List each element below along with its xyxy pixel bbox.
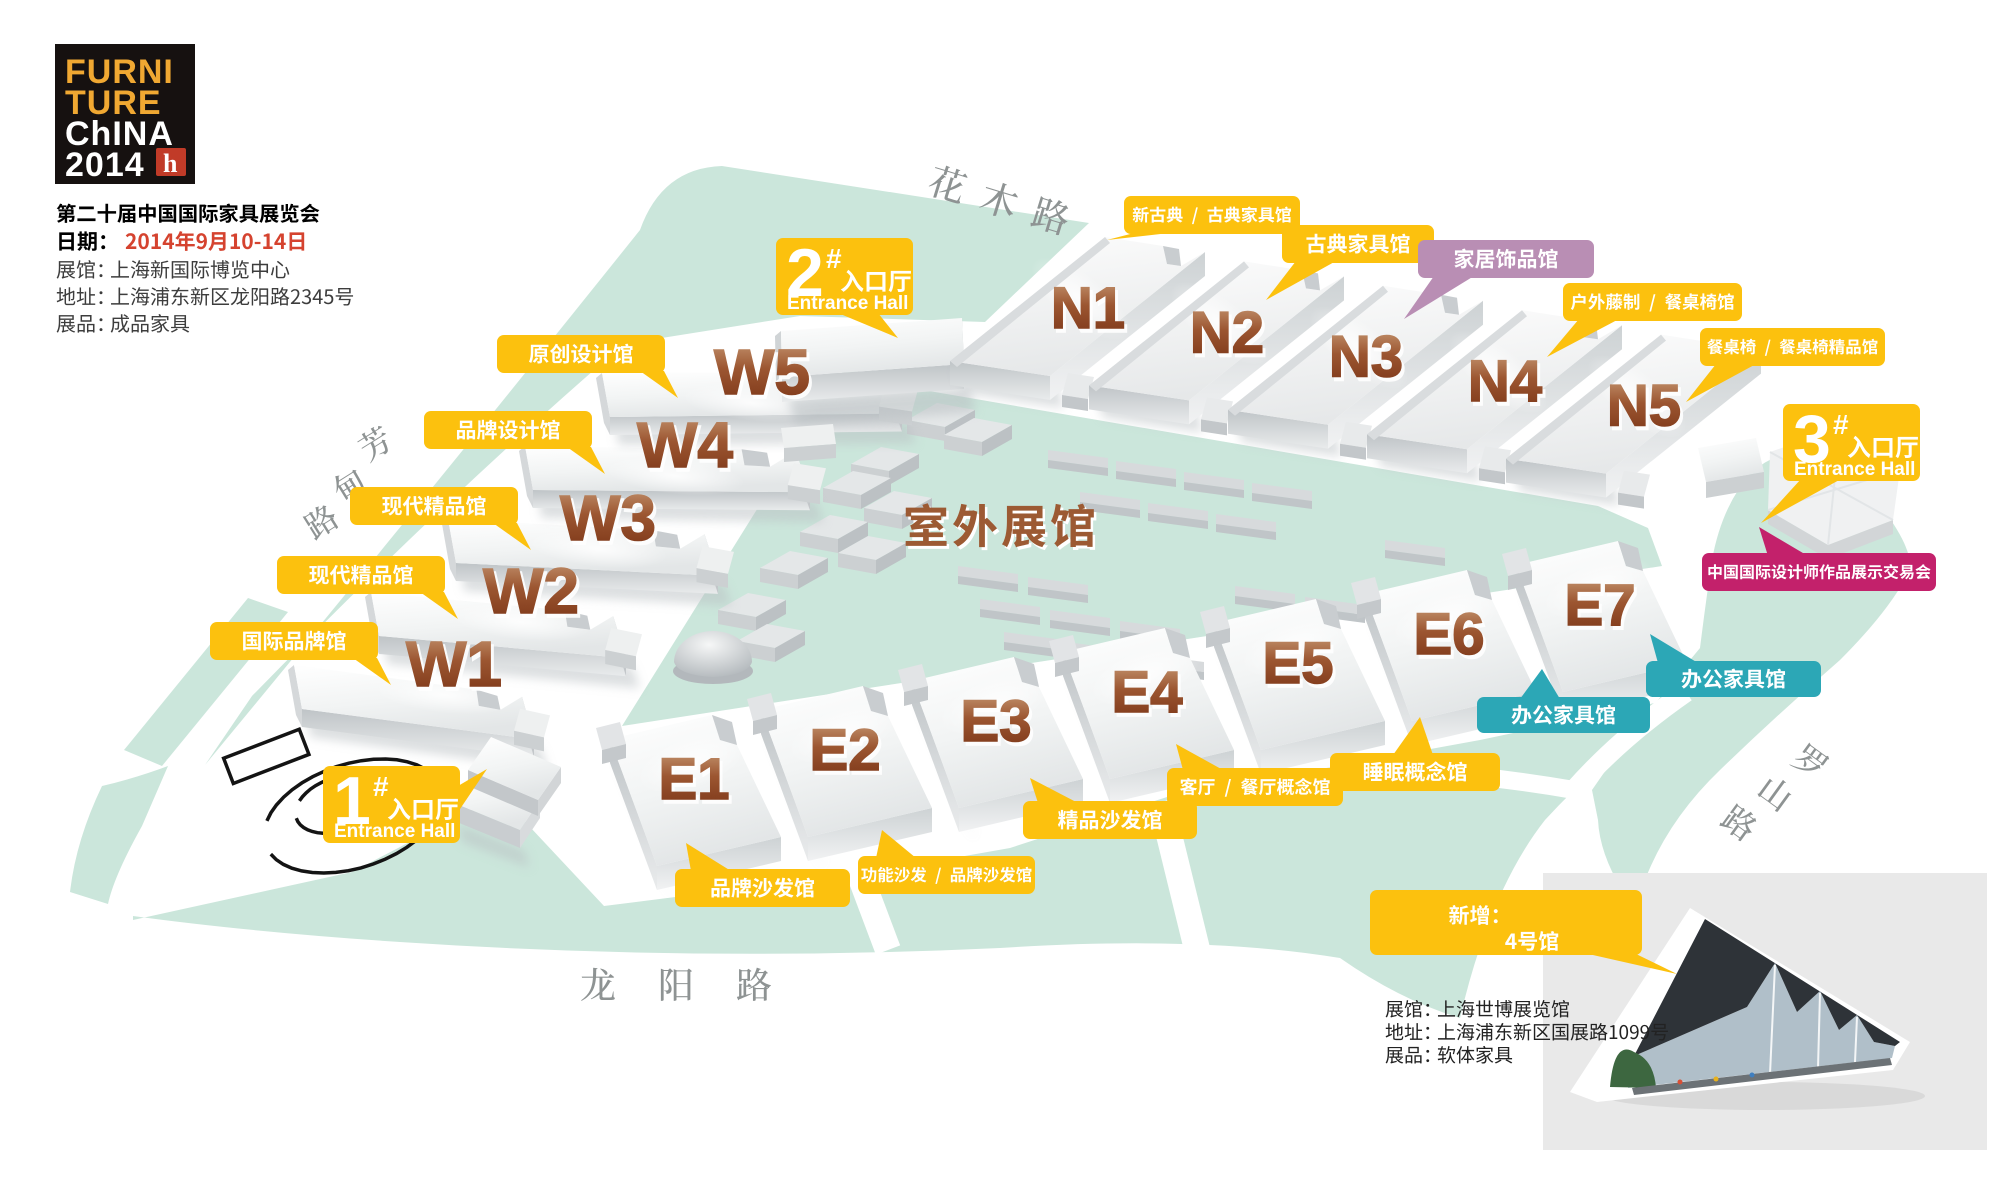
svg-text:W2: W2 [483,555,579,627]
svg-text:#: # [826,243,842,274]
svg-text:#: # [1833,409,1849,440]
svg-text:N5: N5 [1607,373,1681,438]
svg-text:E4: E4 [1112,660,1183,725]
svg-text:E1: E1 [659,747,730,812]
svg-text:N3: N3 [1329,325,1403,390]
svg-text:h: h [163,149,178,178]
svg-text:E5: E5 [1263,631,1334,696]
svg-text:W1: W1 [406,628,502,700]
svg-text:E7: E7 [1565,573,1636,638]
svg-text:Entrance Hall: Entrance Hall [787,293,908,314]
svg-text:N2: N2 [1190,300,1264,365]
svg-text:N1: N1 [1051,276,1125,341]
svg-text:E6: E6 [1414,602,1485,667]
svg-text:#: # [373,771,389,802]
svg-text:W4: W4 [637,409,733,481]
svg-text:W5: W5 [714,336,810,408]
svg-text:N4: N4 [1468,349,1542,414]
svg-text:E2: E2 [810,718,881,783]
svg-text:Entrance Hall: Entrance Hall [1794,459,1915,480]
svg-text:2014: 2014 [65,146,145,184]
svg-text:W3: W3 [560,482,656,554]
svg-text:E3: E3 [961,689,1032,754]
svg-text:Entrance Hall: Entrance Hall [334,821,455,842]
